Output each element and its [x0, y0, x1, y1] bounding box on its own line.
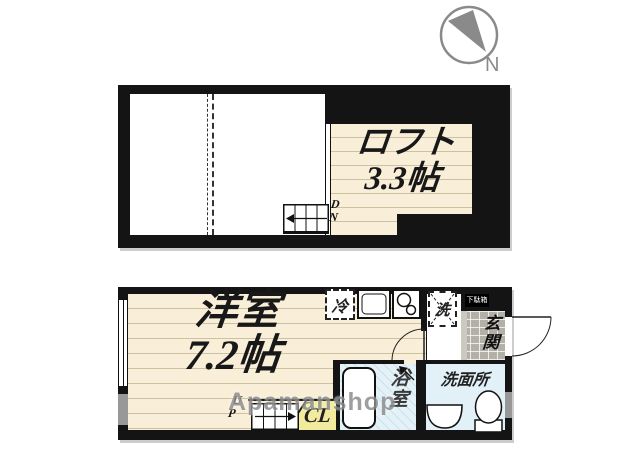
room-label-line2: 7.2帖 [140, 334, 325, 379]
loft-label: ロフト 3.3帖 [339, 126, 468, 197]
void-dashed-line-2 [212, 94, 214, 235]
stairs-up-icon [251, 403, 299, 430]
floorplan-canvas: N ロフト 3.3帖 [0, 0, 640, 455]
upper-floor-plan: ロフト 3.3帖 D N [118, 85, 510, 248]
loft-label-line1: ロフト [343, 126, 469, 162]
stairs-down-icon [283, 204, 329, 234]
entrance-floor-line [462, 360, 505, 361]
corner-wall-block [487, 287, 512, 311]
stove [392, 289, 421, 319]
western-room-label: 洋室 7.2帖 [140, 289, 330, 380]
basin-icon [426, 403, 464, 430]
dn-letter-n: N [328, 211, 338, 224]
shoebox: 下駄箱 [465, 294, 489, 307]
loft-notch-wall [397, 214, 472, 235]
corridor-door-arc-icon [390, 328, 426, 362]
window-left-mullion [123, 300, 124, 386]
loft-label-line2: 3.3帖 [339, 162, 465, 198]
stove-icon [392, 289, 421, 319]
up-letter-p: P [227, 407, 240, 420]
front-door-arc-icon [511, 315, 554, 359]
toilet-icon [473, 389, 505, 433]
compass-north-label: N [485, 54, 499, 77]
bathtub-icon [342, 367, 376, 429]
refrigerator-label: 冷 [331, 293, 350, 317]
pipe-space-right [505, 392, 512, 418]
closet-label: CL [303, 403, 332, 428]
kitchen-sink [357, 289, 391, 319]
entrance-step [461, 311, 467, 360]
refrigerator-box: 冷 [325, 289, 355, 320]
pipe-space-left [118, 394, 128, 425]
sink-icon [357, 289, 391, 319]
stairs-up [251, 403, 299, 430]
washing-machine-label: 洗 [434, 299, 451, 320]
bathroom: 浴室 [340, 364, 416, 430]
bath-door-arrow-icon [398, 365, 416, 382]
washroom-label: 洗面所 [428, 366, 503, 390]
compass-icon [435, 2, 515, 84]
washroom: 洗面所 [426, 364, 505, 430]
entrance-area: 玄関 [461, 311, 505, 360]
loft-area: ロフト 3.3帖 [331, 124, 472, 235]
entrance-label: 玄関 [476, 314, 504, 352]
stairs-down [283, 204, 329, 234]
void-dashed-line-1 [207, 94, 208, 235]
window-left [118, 299, 128, 387]
corridor-wall [421, 294, 427, 331]
compass: N [435, 2, 515, 84]
main-floor-plan: 洋室 7.2帖 冷 [118, 287, 512, 440]
washing-machine-box: 洗 [428, 291, 457, 327]
bath-washroom-wall [416, 360, 426, 440]
room-label-line1: 洋室 [145, 289, 330, 334]
